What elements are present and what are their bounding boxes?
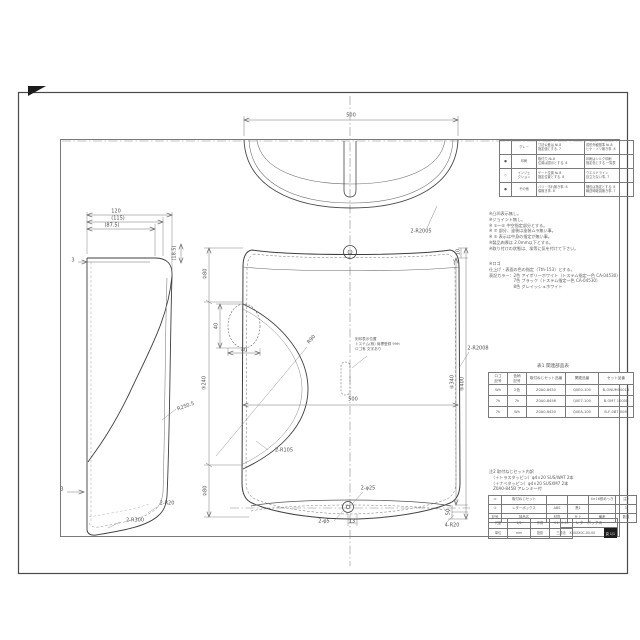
- dim-label: 40: [215, 323, 220, 329]
- table-cell: 7h: [489, 407, 508, 418]
- table-cell: ①: [489, 505, 502, 514]
- table-cell: ●: [500, 183, 512, 197]
- table-cell: Q0E7-100: [566, 396, 599, 407]
- dim-label: ⑤400: [461, 377, 466, 391]
- table-cell: 印刷: [512, 155, 537, 169]
- spec-table: グレー寸法公差は №.8 指定値とする. 7成形外観基準 №.8 ヒケ・ソリ無き…: [499, 140, 634, 197]
- table-cell: 取付ねじセット: [502, 496, 547, 505]
- dim-label: 4-R20: [445, 524, 460, 529]
- table-cell: B-OM7 1000B: [599, 396, 634, 407]
- dim-label: 2-φ5: [318, 520, 329, 525]
- table-cell: Z0A0-8450: [527, 407, 566, 418]
- dim-label: ②80: [204, 269, 209, 280]
- table-cell: [568, 496, 589, 505]
- table-cell: mm: [508, 529, 531, 539]
- part-name: レターボックス: [561, 519, 617, 528]
- dim-label: 13: [349, 520, 355, 525]
- table-cell: B-ONUM1001B: [599, 385, 634, 396]
- top-view: [244, 116, 458, 228]
- related-parts-table: ロゴ 記号色柄 記号取付ねじセット品番関連品番セット品番Wh2色Z0A0-845…: [488, 372, 634, 418]
- table-cell: [589, 505, 616, 514]
- text-line: Z0A0-845B アレンキー付: [489, 486, 617, 492]
- table-cell: 取付穴 №.8 位置は図示とする. 8: [537, 155, 585, 169]
- table-cell: [547, 496, 568, 505]
- table-row: ●印刷取付穴 №.8 位置は図示とする. 8印刷はシルク印刷 指定色とする 一覧…: [500, 155, 634, 169]
- table-cell: Z0A0-8456: [527, 396, 566, 407]
- table-cell: インジェ クション: [512, 169, 537, 183]
- table-cell: 関連品番: [566, 373, 599, 385]
- table-cell: Q0EA-100: [566, 407, 599, 418]
- table-cell: ABS: [547, 505, 568, 514]
- table-cell: 成形外観基準 №.8 ヒケ・ソリ無き事. 8: [585, 141, 634, 155]
- table-row: グレー寸法公差は №.8 指定値とする. 7成形外観基準 №.8 ヒケ・ソリ無き…: [500, 141, 634, 155]
- dim-label: (87.5): [104, 224, 119, 229]
- table-cell: 色柄 記号: [508, 373, 527, 385]
- table-cell: 尺度: [489, 519, 508, 529]
- table-cell: 1/2: [508, 519, 531, 529]
- part-stamp-note: 刻印表示位置トステム(株) 商標登録 99Hロゴ有 文字あり: [355, 337, 400, 352]
- table-cell: レターボックス: [502, 505, 547, 514]
- dim-label: 50: [447, 509, 452, 515]
- dim-label: 500: [348, 398, 358, 403]
- table-cell: 梱包は指定とする. 8 輸送時破損無き事. 7: [585, 183, 634, 197]
- table-row: ①レターボックスABS黒11: [489, 505, 637, 514]
- table-cell: 投影: [531, 529, 550, 539]
- front-view: [204, 246, 469, 527]
- table-cell: ●: [500, 155, 512, 169]
- table-cell: [500, 141, 512, 155]
- dim-label: 500: [346, 114, 356, 119]
- dim-label: 3: [60, 488, 63, 493]
- dim-label: ②80: [204, 486, 209, 497]
- table-cell: 黒1: [568, 505, 589, 514]
- table-cell: Wh: [508, 407, 527, 418]
- side-view: [67, 212, 181, 535]
- table-row: ●その他バリ・汚れ無き事. 8 傷無き事. 8梱包は指定とする. 8 輸送時破損…: [500, 183, 634, 197]
- table-cell: ②: [489, 496, 502, 505]
- dim-label: 2-R105: [275, 449, 293, 454]
- table-row: ◇インジェ クションゲート位置 №.8 指定位置とする. 8ウエルドライン 目立…: [500, 169, 634, 183]
- dim-label: 2-R2005: [410, 230, 431, 235]
- dim-label: 10: [457, 249, 462, 255]
- table1-title: 表1 関連部品表: [489, 363, 617, 369]
- table-cell: ウエルドライン 目立たない事. 7: [585, 169, 634, 183]
- table-row: 7h7hZ0A0-8456Q0E7-100B-OM7 1000B: [489, 396, 634, 407]
- color-notes: ※ロゴ仕上げ・表面の色の指定（7th-153）とする。表記カラー：2色 アイボリ…: [489, 261, 617, 290]
- dim-label: ④340: [451, 375, 456, 389]
- table-cell: 寸法公差は №.8 指定値とする. 7: [537, 141, 585, 155]
- table-cell: 4×16鉄めっき: [589, 496, 616, 505]
- table-cell: 印刷はシルク印刷 指定色とする 一覧表: [585, 155, 634, 169]
- table-row: ロゴ 記号色柄 記号取付ねじセット品番関連品番セット品番: [489, 373, 634, 385]
- table-row: 7hWhZ0A0-8450Q0EA-100B-F-0B7-00M: [489, 407, 634, 418]
- table-cell: グレー: [512, 141, 537, 155]
- table-cell: ロゴ 記号: [489, 373, 508, 385]
- drawing-number: XXXXX0C-00-00: [561, 531, 604, 535]
- table-cell: その他: [512, 183, 537, 197]
- drawing-sheet: 5002-R2005120(115)(87.5)(18.5)3R250.52-R…: [0, 0, 640, 640]
- text-line: トステム(株) 商標登録 99H: [355, 342, 400, 347]
- text-line: 8色 グレイッシュホワイト: [489, 284, 617, 290]
- table-cell: 取付ねじセット品番: [527, 373, 566, 385]
- table-cell: 7h: [508, 396, 527, 407]
- screw-set-note: 注2 取付ねじセット内訳 （＋トラスタッピン）φ4×20 SUS/WAT 2本 …: [489, 469, 617, 492]
- cad-linework: [0, 0, 640, 640]
- table-cell: ◇: [500, 169, 512, 183]
- dim-label: 2-R300: [126, 519, 144, 524]
- dim-label: (18.5): [173, 245, 178, 260]
- dim-label: 120: [111, 210, 121, 215]
- table-cell: 7h: [489, 396, 508, 407]
- general-notes: ※凸凹表示無し。※ジョイント無し。※ ①～⑤ 中空指定部分とする。※ ⑦ 部分、…: [489, 211, 617, 252]
- table-row: ②取付ねじセット4×16鉄めっき注2: [489, 496, 637, 505]
- table-cell: 数量: [616, 514, 637, 523]
- dim-label: 2-R2008: [467, 347, 488, 352]
- dim-label: (115): [111, 217, 124, 222]
- dim-label: 40: [241, 349, 247, 354]
- title-block-id: レターボックス XXXXX0C-00-00 頁 1/1: [560, 518, 618, 537]
- dim-label: 2-φ25: [361, 487, 376, 492]
- dim-label: 3: [71, 259, 74, 264]
- table-cell: ゲート位置 №.8 指定位置とする. 8: [537, 169, 585, 183]
- text-line: ※取り付けの状態は、埃等に気を付けて下さい。: [489, 246, 617, 252]
- table-cell: 2色: [508, 385, 527, 396]
- table-cell: Q0E0-100: [566, 385, 599, 396]
- table-cell: 1: [616, 505, 637, 514]
- table-cell: バリ・汚れ無き事. 8 傷無き事. 8: [537, 183, 585, 197]
- page-indicator: 頁 1/1: [604, 528, 617, 538]
- corner-mark: [28, 86, 46, 96]
- table-cell: 単位: [489, 529, 508, 539]
- table-cell: Z0A0-8450: [527, 385, 566, 396]
- table-cell: 注2: [616, 496, 637, 505]
- dim-label: 2-R20: [160, 502, 175, 507]
- table-cell: 作成: [531, 519, 550, 529]
- table-row: Wh2色Z0A0-8450Q0E0-100B-ONUM1001B: [489, 385, 634, 396]
- dim-label: ③240: [203, 376, 208, 390]
- text-line: ロゴ有 文字あり: [355, 347, 400, 352]
- table-cell: B-F-0B7-00M: [599, 407, 634, 418]
- table-cell: セット品番: [599, 373, 634, 385]
- table-cell: Wh: [489, 385, 508, 396]
